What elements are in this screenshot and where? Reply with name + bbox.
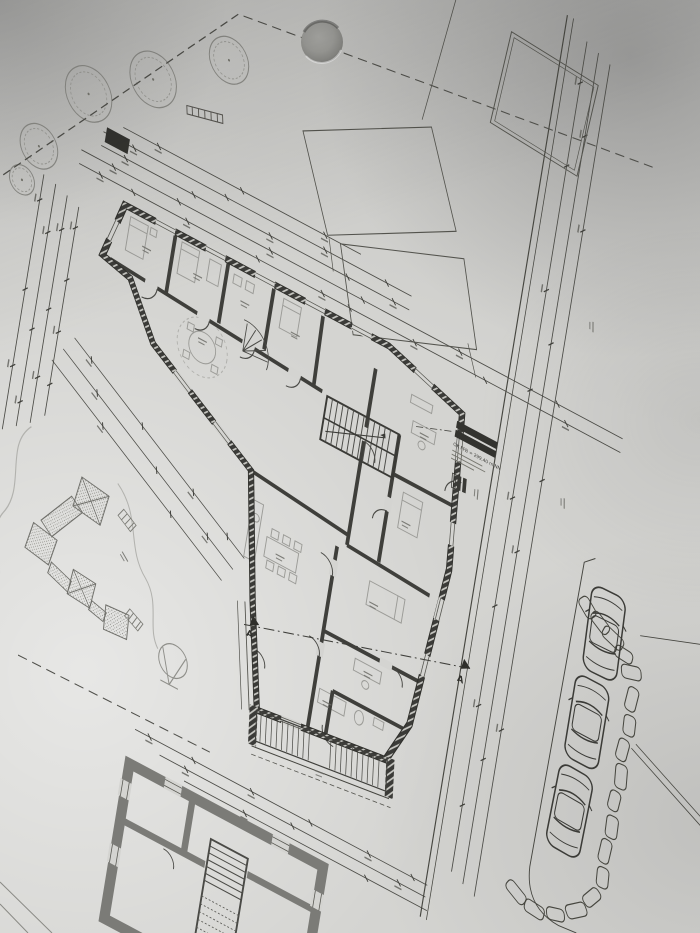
dimension-tick: [90, 356, 93, 363]
tree-trunk-dot: [21, 178, 23, 181]
stone-block: [546, 906, 565, 923]
dimension-tick: [240, 187, 245, 194]
dimension-chain-line: [135, 729, 427, 885]
micro-label: [401, 521, 410, 529]
dimension-tick: [482, 377, 487, 384]
dimension-number-blur: [507, 492, 508, 500]
dimension-tick: [98, 171, 103, 178]
micro-label: [142, 246, 151, 254]
stone-edging: [502, 578, 652, 933]
ladder-symbol: [187, 105, 223, 123]
dimension-number-blur: [201, 536, 208, 543]
dimension-tick: [192, 489, 195, 496]
tree-trunk-dot: [152, 78, 154, 81]
stone-block: [621, 663, 642, 681]
parking-bay-edge: [523, 560, 632, 933]
stone-block: [622, 713, 636, 738]
playground-area: [0, 418, 211, 692]
dimension-tick: [320, 290, 325, 297]
micro-label: [590, 321, 593, 332]
dimension-tick: [226, 533, 229, 540]
dimension-tick: [323, 247, 328, 254]
dimension-number-blur: [70, 222, 71, 230]
dimension-number-blur: [578, 225, 579, 233]
dimension-tick: [169, 511, 172, 518]
stone-block: [614, 762, 628, 791]
dimension-tick: [155, 466, 158, 473]
dimension-number-blur: [575, 77, 576, 85]
dimension-tick: [268, 232, 273, 239]
dimension-number-blur: [15, 396, 16, 404]
stone-block: [596, 865, 610, 890]
dimension-tick: [206, 533, 209, 540]
dimension-number-blur: [91, 393, 98, 400]
dimension-tick: [268, 247, 273, 254]
dimension-tick: [396, 879, 401, 886]
dimension-tick: [308, 819, 313, 826]
dimension-tick: [176, 198, 181, 205]
dimension-tick: [191, 757, 196, 764]
parked-car: [560, 670, 614, 774]
dimension-tick: [384, 279, 389, 286]
neighbor-buildings: [276, 0, 601, 435]
dimension-number-blur: [43, 226, 44, 234]
dimension-number-blur: [97, 426, 104, 433]
micro-label: [561, 497, 564, 508]
parked-car: [578, 582, 630, 686]
legend-solid-marker: [105, 127, 130, 154]
new-building-plan: A A OK FFB = 299,40 m NN: [39, 194, 512, 855]
dimension-number-blur: [35, 194, 36, 202]
dimension-chain-line: [44, 349, 253, 570]
dimension-tick: [242, 810, 247, 817]
paper-sheet: A A OK FFB = 299,40 m NN: [0, 0, 700, 933]
dimension-tick: [111, 164, 116, 171]
bottom-left-road-lines: [0, 882, 52, 933]
stone-block: [597, 837, 613, 866]
dimension-number-blur: [474, 699, 475, 707]
sand-path-line: [0, 418, 31, 594]
dimension-number-blur: [53, 326, 54, 334]
play-box: [103, 605, 128, 640]
stone-block: [504, 878, 527, 907]
dimension-chain-line: [2, 174, 44, 429]
dimension-tick: [123, 155, 128, 162]
dimension-tick: [555, 401, 560, 408]
balcony-edge: [229, 601, 265, 710]
dimension-chain-line: [16, 184, 56, 426]
dimension-tick: [96, 389, 99, 396]
stone-block: [607, 788, 622, 813]
bench: [118, 509, 136, 531]
dimension-chain-line: [184, 781, 427, 911]
stone-block: [577, 595, 597, 621]
stone-block: [605, 813, 619, 841]
micro-label: [474, 488, 478, 500]
dimension-tick: [366, 851, 371, 858]
dimension-tick: [458, 348, 463, 355]
dimension-tick: [101, 422, 104, 429]
dimension-number-blur: [33, 371, 34, 379]
dimension-tick: [156, 143, 161, 150]
dimension-chain-line: [32, 360, 241, 581]
micro-label: [120, 552, 128, 563]
dimension-tick: [255, 255, 260, 262]
dimension-tick: [364, 875, 369, 882]
dimension-tick: [249, 788, 254, 795]
dimension-number-blur: [512, 545, 513, 553]
tree-trunk-dot: [38, 145, 40, 148]
dimension-number-blur: [541, 284, 542, 292]
dimension-tick: [131, 189, 136, 196]
micro-label: [193, 273, 202, 281]
dimension-number-blur: [187, 492, 194, 499]
tree-trunk-dot: [87, 92, 89, 95]
micro-label: [197, 338, 206, 346]
dimension-number-blur: [8, 359, 9, 367]
dimension-chain-line: [81, 150, 622, 439]
dimension-tick: [564, 420, 569, 427]
tree-trunk-dot: [228, 59, 230, 62]
stone-block: [624, 685, 640, 714]
dimension-tick: [191, 191, 196, 198]
existing-stair: [195, 839, 248, 933]
dimension-number-blur: [496, 724, 497, 732]
existing-building-plan: [98, 754, 329, 933]
dimension-tick: [410, 874, 415, 881]
micro-label: [275, 554, 284, 562]
stone-block: [581, 886, 603, 909]
parked-car: [541, 759, 597, 863]
dimension-tick: [147, 733, 152, 740]
play-tower: [73, 477, 109, 525]
micro-label: [240, 301, 249, 309]
dimension-tick: [185, 218, 190, 225]
dimension-number-blur: [85, 359, 92, 366]
dimension-tick: [141, 422, 144, 429]
dimension-tick: [132, 145, 137, 152]
parasol-table: [155, 638, 190, 692]
dimension-number-blur: [57, 223, 58, 231]
existing-windows: [105, 754, 329, 933]
dimension-number-blur: [580, 130, 581, 138]
outer-wall-hatch: [47, 198, 478, 793]
dimension-tick: [290, 823, 295, 830]
dimension-tick: [184, 766, 189, 773]
road-lines: [420, 15, 700, 933]
stone-block: [615, 736, 631, 763]
site-plan-drawing: A A OK FFB = 299,40 m NN: [0, 0, 700, 933]
plot-line-east: [640, 583, 700, 710]
dimension-tick: [224, 194, 229, 201]
dimension-tick: [391, 298, 396, 305]
punched-hole: [301, 21, 343, 63]
plan-rotated-layer: A A OK FFB = 299,40 m NN: [0, 0, 700, 933]
dimension-tick: [360, 296, 365, 303]
neighbor-building: [303, 127, 456, 235]
